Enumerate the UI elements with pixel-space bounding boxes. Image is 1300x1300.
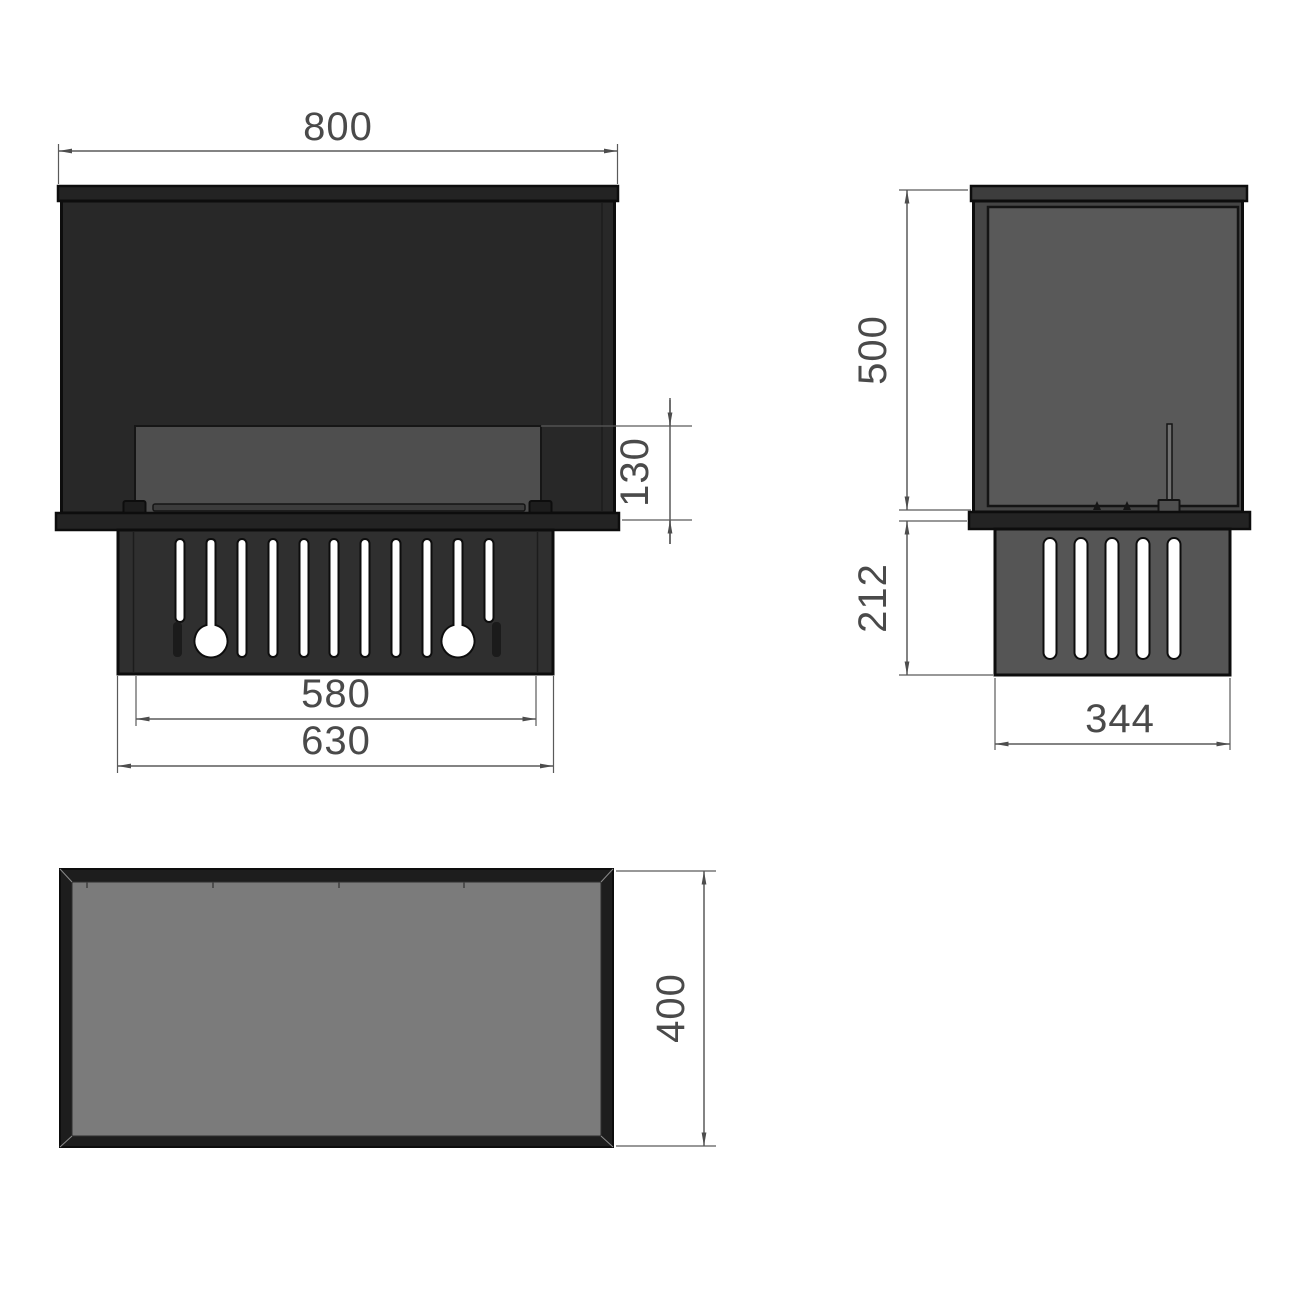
vent-slot xyxy=(269,539,278,657)
technical-drawing-canvas: 800 130 580 630 500 212 344 xyxy=(0,0,1300,1300)
vent-slot xyxy=(423,539,432,657)
vent-slot xyxy=(1168,538,1181,659)
vent-slot xyxy=(1106,538,1119,659)
vent-slot xyxy=(238,539,247,657)
side-view xyxy=(969,186,1250,675)
vent-slot-short xyxy=(485,539,494,622)
dim-front-width-label: 800 xyxy=(303,105,373,149)
dim-burner-height-label: 130 xyxy=(613,437,657,507)
side-inner-panel xyxy=(988,207,1238,506)
side-top-cap xyxy=(971,186,1247,201)
regulator-rod xyxy=(1167,424,1172,503)
vent-slot xyxy=(361,539,370,657)
dim-base-outer-width-label: 630 xyxy=(301,719,371,763)
dimension-body-height: 500 xyxy=(851,190,971,510)
dim-base-height-label: 212 xyxy=(851,563,895,633)
vent-slot-short xyxy=(176,539,185,622)
dimension-base-height: 212 xyxy=(851,521,993,675)
dim-body-height-label: 500 xyxy=(851,315,895,385)
vent-slot xyxy=(1075,538,1088,659)
dimension-front-width: 800 xyxy=(59,105,618,184)
dimension-body-depth: 400 xyxy=(616,871,716,1146)
dimension-base-depth: 344 xyxy=(995,678,1230,750)
drawing-svg: 800 130 580 630 500 212 344 xyxy=(0,0,1300,1300)
front-bottom-lip xyxy=(56,513,619,530)
front-top-cap xyxy=(58,186,618,201)
dim-base-depth-label: 344 xyxy=(1085,697,1155,741)
vent-slot xyxy=(1044,538,1057,659)
front-view xyxy=(56,186,619,674)
dim-body-depth-label: 400 xyxy=(649,973,693,1043)
vent-slot xyxy=(1137,538,1150,659)
top-view-surface xyxy=(72,882,601,1136)
front-burner-window xyxy=(135,426,541,513)
vent-slot xyxy=(392,539,401,657)
burner-tray-edge xyxy=(153,504,525,511)
side-bottom-lip xyxy=(969,512,1250,529)
dimension-base-inner-width: 580 xyxy=(136,672,536,726)
vent-slot xyxy=(330,539,339,657)
slot-notch-right xyxy=(492,622,501,657)
top-view xyxy=(60,869,613,1147)
vent-slot xyxy=(300,539,309,657)
slot-notch-left xyxy=(173,622,182,657)
dim-base-inner-width-label: 580 xyxy=(301,672,371,716)
